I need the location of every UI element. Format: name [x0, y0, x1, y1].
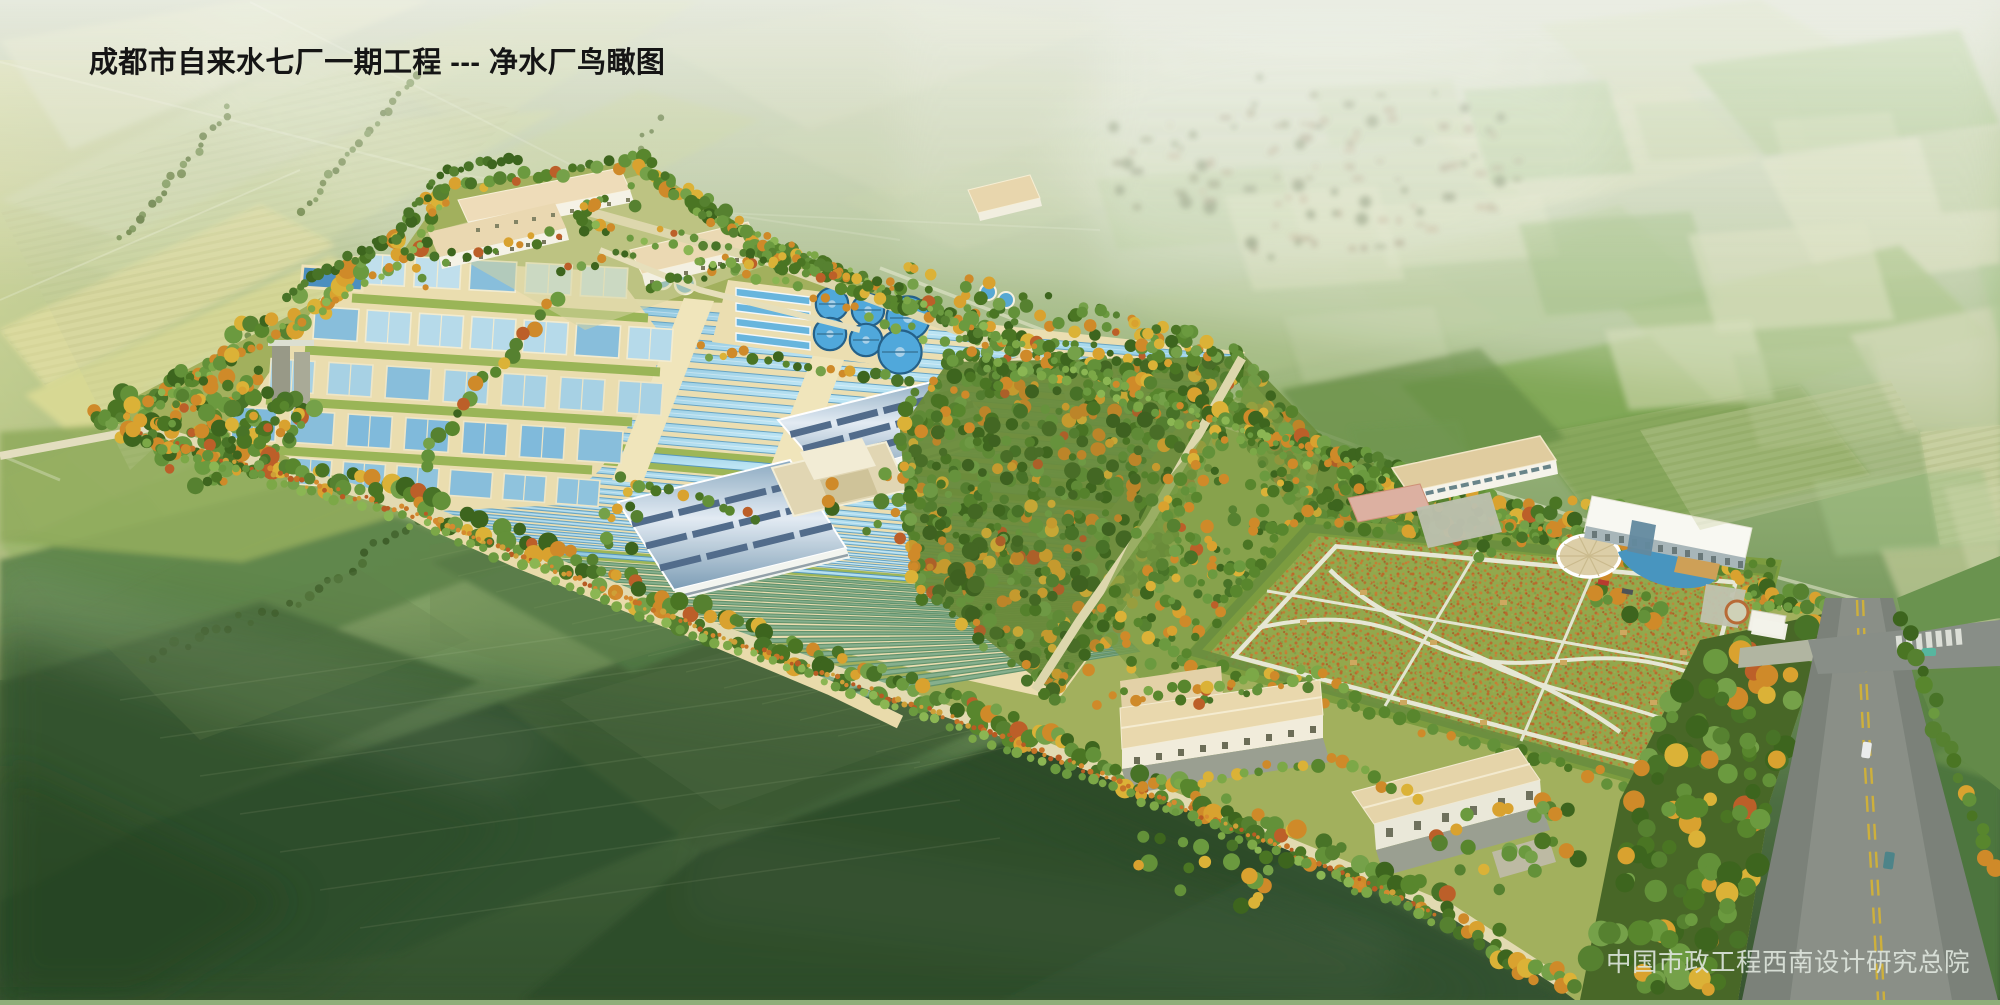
- svg-text:中国市政工程西南设计研究总院: 中国市政工程西南设计研究总院: [1606, 949, 1970, 977]
- svg-text:成都市自来水七厂一期工程 --- 净水厂鸟瞰图: 成都市自来水七厂一期工程 --- 净水厂鸟瞰图: [89, 45, 665, 79]
